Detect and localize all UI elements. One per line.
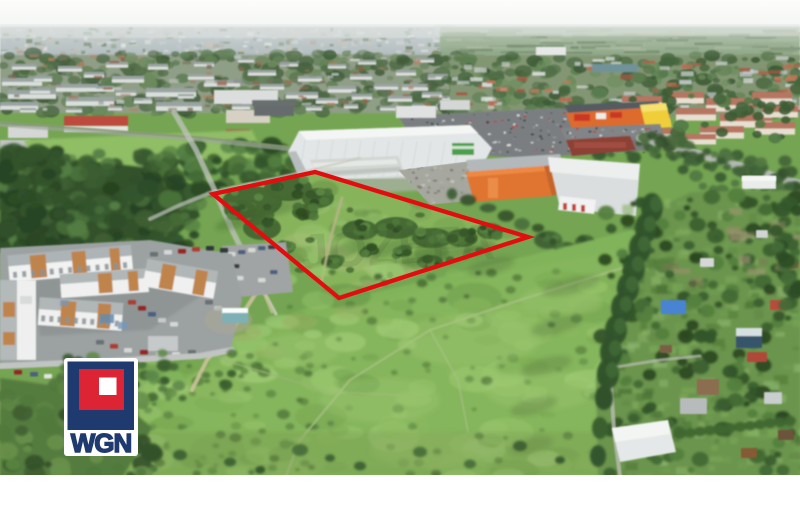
svg-text:WGN: WGN [71, 428, 132, 458]
